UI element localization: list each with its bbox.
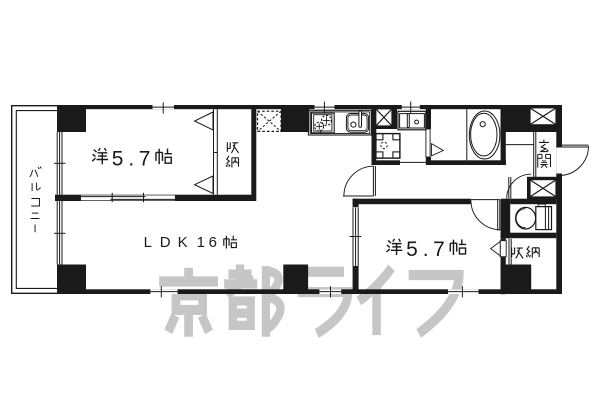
svg-text:7: 7 xyxy=(139,147,151,170)
svg-text:K: K xyxy=(178,234,188,251)
svg-text:5: 5 xyxy=(112,147,124,170)
svg-text:1: 1 xyxy=(197,234,205,251)
svg-text:L: L xyxy=(144,234,152,251)
svg-text:.: . xyxy=(128,147,134,170)
svg-text:5: 5 xyxy=(406,238,418,261)
svg-text:.: . xyxy=(423,238,429,261)
svg-text:6: 6 xyxy=(209,234,217,251)
svg-text:7: 7 xyxy=(433,238,445,261)
svg-text:D: D xyxy=(160,234,171,251)
